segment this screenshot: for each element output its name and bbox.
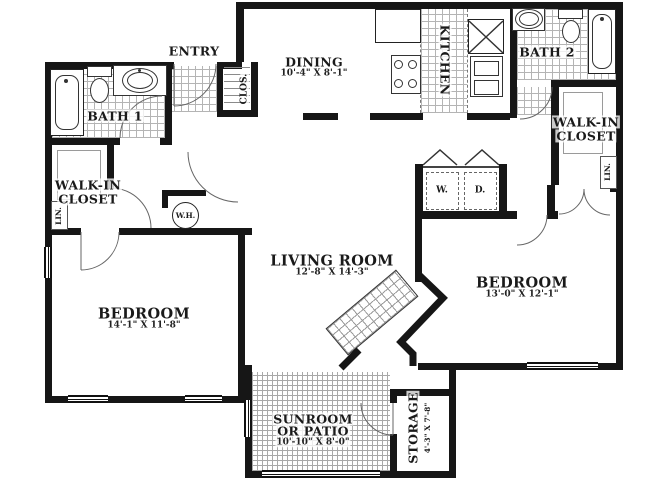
- sink-2-basin: [519, 12, 539, 26]
- burner-2: [408, 60, 417, 69]
- walkin-left-label-1: WALK-IN: [54, 178, 122, 191]
- laundry-bifold-left: [423, 150, 457, 165]
- walkin-right-door-arc-left: [559, 189, 584, 214]
- burner-3: [394, 79, 403, 88]
- bathtub-2-basin: [592, 14, 612, 69]
- storage-dims: 4'-3" X 7'-8": [424, 402, 432, 455]
- wall-dining-left: [236, 2, 244, 62]
- toilet-2-tank: [558, 9, 583, 19]
- walkin-right-door-arc-right: [584, 189, 610, 215]
- bathtub-1-basin: [55, 75, 79, 130]
- wall-clos-left: [217, 62, 223, 112]
- dryer-label: D.: [474, 186, 487, 195]
- linen-right-label: LIN.: [604, 162, 612, 182]
- walkin-left-label-2: CLOSET: [57, 192, 118, 205]
- bath2-vestibule-tile: [517, 87, 551, 115]
- water-heater-label: W.H.: [175, 212, 197, 220]
- storage-label: STORAGE: [406, 391, 419, 465]
- dining-dims: 10'-4" X 8'-1": [280, 69, 349, 78]
- bathtub-1-drain: [64, 79, 68, 83]
- wall-waterheater-top: [162, 190, 206, 196]
- floor-plan: ENTRY DINING 10'-4" X 8'-1" KITCHEN BATH…: [0, 0, 670, 480]
- wall-storage-left-b: [390, 434, 397, 478]
- kitchen-sink-basin-2: [474, 80, 499, 95]
- sunroom-dims: 10'-10" X 8'-0": [275, 438, 350, 447]
- wall-laundry-bottom: [415, 211, 517, 219]
- linen-left-label: LIN.: [55, 206, 63, 226]
- bath2-label: BATH 2: [518, 45, 576, 58]
- clos-label: CLOS.: [240, 73, 249, 106]
- wall-dining-bottom-b: [370, 113, 423, 120]
- living-room-dims: 12'-8" X 14'-3": [294, 268, 369, 277]
- wall-bedroom-left-top-b: [119, 228, 252, 235]
- wall-storage-top: [390, 389, 452, 396]
- wall-clos-right: [251, 62, 258, 117]
- laundry-bifold-right: [465, 150, 499, 165]
- walkin-right-label-1: WALK-IN: [552, 115, 620, 128]
- wall-bath2-bottom: [551, 80, 623, 87]
- wall-storage-left-a: [390, 389, 397, 403]
- bedroom-left-door-arc: [81, 232, 119, 270]
- bedroom-right-door-arc: [517, 215, 547, 245]
- entry-label: ENTRY: [168, 44, 221, 57]
- window-bedroom-left-2: [185, 395, 222, 403]
- window-bedroom-left-1: [68, 395, 108, 403]
- walkin-right-label-2: CLOSET: [555, 129, 616, 142]
- sink-1-basin: [127, 72, 153, 89]
- wall-bedroom-left-right: [238, 228, 245, 403]
- sunroom-label-2: OR PATIO: [276, 424, 350, 437]
- wall-bedroom-right-left: [415, 211, 422, 282]
- wall-bath1-bottom-b: [160, 138, 172, 145]
- window-bedroom-right: [527, 362, 598, 370]
- wall-storage-right: [449, 363, 456, 478]
- wall-kitchen-bottom: [467, 113, 510, 120]
- wall-waterheater-left: [162, 190, 168, 208]
- wall-dining-bottom-a: [303, 113, 338, 120]
- refrigerator: [468, 19, 504, 54]
- burner-1: [394, 60, 403, 69]
- kitchen-label: KITCHEN: [438, 24, 451, 97]
- sink-1-faucet: [138, 69, 141, 72]
- kitchen-cabinet: [375, 9, 421, 43]
- wall-bedroom-right-stub: [547, 211, 558, 219]
- wall-top: [236, 2, 623, 9]
- window-sunroom-bottom: [262, 470, 380, 478]
- dining-label: DINING: [284, 55, 344, 68]
- wall-laundry-right: [499, 164, 507, 212]
- toilet-2-bowl: [562, 20, 580, 43]
- laundry-opening-line: [423, 166, 499, 168]
- toilet-1-tank: [87, 66, 112, 77]
- bedroom-right-dims: 13'-0" X 12'-1": [484, 290, 559, 299]
- toilet-1-bowl: [90, 78, 109, 103]
- entry-tile-floor: [167, 66, 222, 112]
- bath1-label: BATH 1: [86, 109, 144, 122]
- fireplace-hearth: [326, 270, 419, 356]
- bathtub-2-drain: [600, 17, 604, 21]
- washer-label: W.: [435, 186, 449, 195]
- bedroom-left-dims: 14'-1" X 11'-8": [106, 321, 181, 330]
- window-bedroom-left-wall: [44, 247, 52, 278]
- window-sunroom-left: [244, 400, 252, 437]
- burner-4: [408, 79, 417, 88]
- kitchen-sink-basin-1: [474, 61, 499, 76]
